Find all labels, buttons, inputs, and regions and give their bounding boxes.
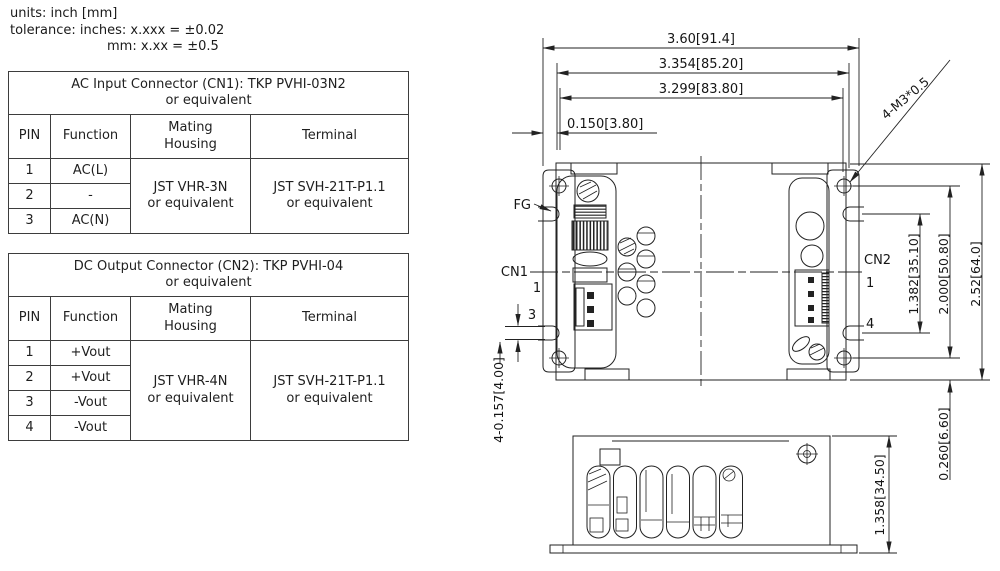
housing-cell: JST VHR-3N or equivalent: [131, 159, 251, 234]
pin-cell: 4: [9, 416, 51, 441]
col-header-function: Function: [51, 115, 131, 159]
col-header-pin: PIN: [9, 297, 51, 341]
table-title-row: AC Input Connector (CN1): TKP PVHI-03N2 …: [9, 72, 409, 115]
terminal-cell: JST SVH-21T-P1.1 or equivalent: [251, 159, 409, 234]
cn2-connector: [795, 270, 829, 326]
units-line: units: inch [mm]: [10, 6, 224, 23]
table-title: DC Output Connector (CN2): TKP PVHI-04 o…: [9, 254, 409, 297]
units-tolerance-note: units: inch [mm] tolerance: inches: x.xx…: [10, 6, 224, 56]
tolerance-mm-line: mm: x.xx = ±0.5: [107, 39, 224, 56]
table-header-row: PIN Function Mating Housing Terminal: [9, 115, 409, 159]
col-header-pin: PIN: [9, 115, 51, 159]
case-screw: [796, 443, 818, 465]
vent-slots: [587, 466, 743, 538]
terminal-cell: JST SVH-21T-P1.1 or equivalent: [251, 341, 409, 441]
function-cell: +Vout: [51, 341, 131, 366]
col-header-terminal: Terminal: [251, 115, 409, 159]
dim-slot-spacing-label: 1.382[35.10]: [906, 233, 921, 314]
cn2-label: CN2: [864, 253, 891, 268]
cn1-label: CN1: [501, 265, 528, 280]
pin-cell: 3: [9, 391, 51, 416]
table-row: 1 +Vout JST VHR-4N or equivalent JST SVH…: [9, 341, 409, 366]
pin-cell: 2: [9, 184, 51, 209]
cn1-pin1-label: 1: [533, 281, 541, 296]
dim-side-height-label: 1.358[34.50]: [872, 454, 887, 535]
cn1-pin3-label: 3: [528, 308, 536, 323]
function-cell: -Vout: [51, 416, 131, 441]
cn2-pin1-label: 1: [866, 276, 874, 291]
tolerance-inches-line: tolerance: inches: x.xxx = ±0.02: [10, 23, 224, 40]
function-cell: AC(L): [51, 159, 131, 184]
base-plate: [550, 545, 857, 553]
table-title-row: DC Output Connector (CN2): TKP PVHI-04 o…: [9, 254, 409, 297]
dim-slot-width-label: 3.299[83.80]: [659, 82, 744, 97]
pin-cell: 2: [9, 366, 51, 391]
dim-overall-depth-label: 2.52[64.0]: [968, 241, 983, 306]
top-view: 3.60[91.4] 3.354[85.20] 3.299[83.80] 0.1…: [491, 32, 990, 553]
table-header-row: PIN Function Mating Housing Terminal: [9, 297, 409, 341]
function-cell: -: [51, 184, 131, 209]
ac-section-components: [572, 180, 655, 330]
col-header-housing: Mating Housing: [131, 297, 251, 341]
dc-section-components: [790, 212, 829, 360]
function-cell: -Vout: [51, 391, 131, 416]
col-header-housing: Mating Housing: [131, 115, 251, 159]
pin-cell: 1: [9, 341, 51, 366]
pin-cell: 3: [9, 209, 51, 234]
datasheet-page: units: inch [mm] tolerance: inches: x.xx…: [0, 0, 1000, 571]
mechanical-drawing: 3.60[91.4] 3.354[85.20] 3.299[83.80] 0.1…: [480, 0, 1000, 571]
dim-bottom-offset-label: 0.260[6.60]: [936, 407, 951, 480]
col-header-function: Function: [51, 297, 131, 341]
dim-edge-offset-label: 0.150[3.80]: [567, 117, 643, 132]
side-view: 1.358[34.50]: [550, 436, 889, 553]
fg-label: FG: [513, 198, 531, 213]
cn1-connector: [574, 284, 612, 330]
dim-mounting-width-label: 3.354[85.20]: [659, 57, 744, 72]
dim-screw-spacing-label: 2.000[50.80]: [936, 233, 951, 314]
col-header-terminal: Terminal: [251, 297, 409, 341]
cn2-connector-table: DC Output Connector (CN2): TKP PVHI-04 o…: [8, 253, 409, 441]
table-title: AC Input Connector (CN1): TKP PVHI-03N2 …: [9, 72, 409, 115]
cn1-connector-table: AC Input Connector (CN1): TKP PVHI-03N2 …: [8, 71, 409, 234]
cn2-pin4-label: 4: [866, 317, 874, 332]
function-cell: +Vout: [51, 366, 131, 391]
function-cell: AC(N): [51, 209, 131, 234]
housing-cell: JST VHR-4N or equivalent: [131, 341, 251, 441]
pin-cell: 1: [9, 159, 51, 184]
table-row: 1 AC(L) JST VHR-3N or equivalent JST SVH…: [9, 159, 409, 184]
dim-overall-width-label: 3.60[91.4]: [667, 32, 735, 47]
slot-size-note: 4-0.157[4.00]: [491, 357, 506, 443]
